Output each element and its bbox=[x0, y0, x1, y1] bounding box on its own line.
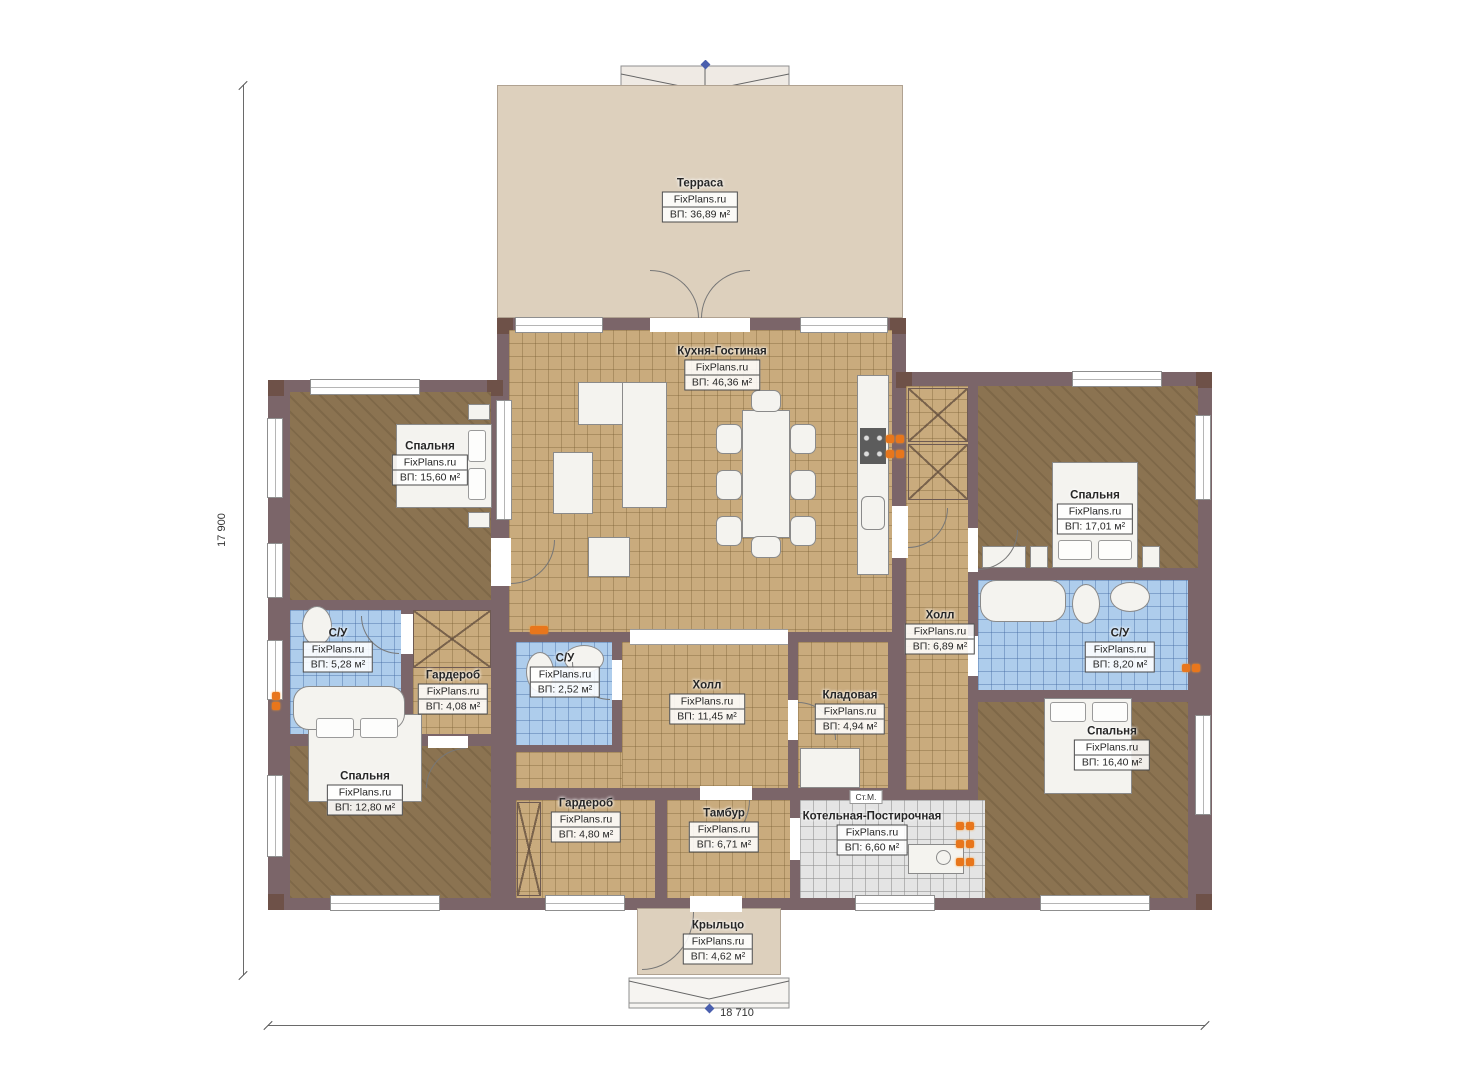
porch-steps-icon bbox=[628, 977, 790, 1015]
room-label-bathroom-2: С/У FixPlans.ruВП: 2,52 м² bbox=[530, 653, 600, 698]
brand-link: FixPlans.ru bbox=[419, 685, 487, 699]
window bbox=[267, 543, 283, 598]
window bbox=[800, 317, 888, 333]
room-label-terrace: Терраса FixPlans.ruВП: 36,89 м² bbox=[662, 178, 738, 223]
dining-chair bbox=[790, 470, 816, 500]
room-label-wardrobe-2: Гардероб FixPlans.ruВП: 4,80 м² bbox=[551, 798, 621, 843]
closet bbox=[413, 610, 491, 668]
hall-2-door-opening bbox=[892, 506, 908, 558]
kitchen-hall-opening bbox=[630, 629, 788, 645]
room-label-hall-1: Холл FixPlans.ruВП: 11,45 м² bbox=[669, 680, 745, 725]
dining-chair bbox=[790, 424, 816, 454]
nightstand bbox=[1030, 546, 1048, 568]
pillow bbox=[360, 718, 398, 738]
window bbox=[267, 640, 283, 700]
window bbox=[1195, 715, 1211, 815]
brand-link: FixPlans.ru bbox=[816, 705, 884, 719]
brand-link: FixPlans.ru bbox=[1058, 505, 1132, 519]
brand-link: FixPlans.ru bbox=[552, 813, 620, 827]
room-label-bedroom-3: Спальня FixPlans.ruВП: 16,40 м² bbox=[1074, 726, 1150, 771]
radiator-icon bbox=[272, 692, 280, 710]
room-label-pantry: Кладовая FixPlans.ruВП: 4,94 м² bbox=[815, 690, 885, 735]
room-label-kitchen-living: Кухня-Гостиная FixPlans.ruВП: 46,36 м² bbox=[677, 346, 766, 391]
brand-link: FixPlans.ru bbox=[663, 193, 737, 207]
brand-link: FixPlans.ru bbox=[690, 823, 758, 837]
brand-link: FixPlans.ru bbox=[906, 625, 974, 639]
brand-link: FixPlans.ru bbox=[685, 361, 759, 375]
window bbox=[267, 775, 283, 857]
dining-chair bbox=[716, 424, 742, 454]
pillow bbox=[1058, 540, 1092, 560]
room-label-bedroom-1: Спальня FixPlans.ruВП: 15,60 м² bbox=[392, 441, 468, 486]
room-hall-1-passage-floor bbox=[516, 752, 622, 788]
kitchen-sink bbox=[861, 496, 885, 530]
dimension-line-vertical bbox=[243, 85, 244, 975]
window bbox=[310, 379, 420, 395]
room-label-boiler-laundry: Котельная-Постирочная FixPlans.ruВП: 6,6… bbox=[803, 811, 942, 856]
nightstand bbox=[468, 512, 490, 528]
sofa bbox=[622, 382, 667, 508]
radiator-icon bbox=[886, 435, 904, 443]
bathtub bbox=[980, 580, 1066, 622]
room-label-bedroom-2: Спальня FixPlans.ruВП: 17,01 м² bbox=[1057, 490, 1133, 535]
dimension-line-horizontal bbox=[268, 1025, 1205, 1026]
bedroom-1-door-opening bbox=[491, 538, 511, 586]
brand-link: FixPlans.ru bbox=[838, 826, 906, 840]
armchair bbox=[588, 537, 630, 577]
kitchen-counter bbox=[857, 375, 889, 575]
vestibule-door-opening bbox=[700, 786, 752, 800]
floor-plan: 17 900 18 710 bbox=[0, 0, 1474, 1080]
room-label-vestibule: Тамбур FixPlans.ruВП: 6,71 м² bbox=[689, 808, 759, 853]
pillow bbox=[1092, 702, 1128, 722]
room-label-bathroom-1: С/У FixPlans.ruВП: 5,28 м² bbox=[303, 628, 373, 673]
dining-table bbox=[742, 410, 790, 538]
pillow bbox=[468, 430, 486, 462]
bathroom-sink bbox=[1110, 582, 1150, 612]
column bbox=[1196, 894, 1212, 910]
column bbox=[268, 894, 284, 910]
pantry-shelf bbox=[800, 748, 860, 788]
sofa-chaise bbox=[578, 382, 623, 425]
nightstand bbox=[468, 404, 490, 420]
room-label-hall-2: Холл FixPlans.ruВП: 6,89 м² bbox=[905, 610, 975, 655]
brand-link: FixPlans.ru bbox=[670, 695, 744, 709]
window bbox=[1040, 895, 1150, 911]
room-label-bathroom-3: С/У FixPlans.ruВП: 8,20 м² bbox=[1085, 628, 1155, 673]
bathroom-2-door-opening bbox=[612, 660, 622, 700]
brand-link: FixPlans.ru bbox=[1075, 741, 1149, 755]
entrance-door-opening bbox=[690, 896, 742, 912]
column bbox=[268, 380, 284, 396]
dining-chair bbox=[716, 516, 742, 546]
room-label-bedroom-4: Спальня FixPlans.ruВП: 12,80 м² bbox=[327, 771, 403, 816]
coffee-table bbox=[553, 452, 593, 514]
brand-link: FixPlans.ru bbox=[304, 643, 372, 657]
room-label-wardrobe-1: Гардероб FixPlans.ruВП: 4,08 м² bbox=[418, 670, 488, 715]
pillow bbox=[468, 468, 486, 500]
bedroom-4-door-opening bbox=[428, 736, 468, 748]
bedroom-2-door-opening bbox=[968, 528, 978, 572]
stove-icon bbox=[860, 428, 886, 464]
pillow bbox=[1098, 540, 1132, 560]
washing-machine-label: Ст.М. bbox=[850, 790, 883, 804]
window bbox=[496, 400, 512, 520]
radiator-icon bbox=[956, 822, 974, 830]
radiator-icon bbox=[886, 450, 904, 458]
window bbox=[267, 418, 283, 498]
dining-chair bbox=[751, 390, 781, 412]
dining-chair bbox=[751, 536, 781, 558]
terrace-door-opening bbox=[650, 318, 750, 332]
radiator-icon bbox=[956, 858, 974, 866]
brand-link: FixPlans.ru bbox=[393, 456, 467, 470]
closet bbox=[517, 802, 541, 896]
pillow bbox=[316, 718, 354, 738]
dimension-height-label: 17 900 bbox=[216, 513, 228, 547]
radiator-icon bbox=[530, 626, 548, 634]
bathroom-1-door-opening bbox=[401, 614, 413, 654]
pantry-door-opening bbox=[788, 700, 798, 740]
room-label-porch: Крыльцо FixPlans.ruВП: 4,62 м² bbox=[683, 920, 753, 965]
dining-chair bbox=[790, 516, 816, 546]
pillow bbox=[1050, 702, 1086, 722]
column bbox=[1196, 372, 1212, 388]
brand-link: FixPlans.ru bbox=[684, 935, 752, 949]
radiator-icon bbox=[956, 840, 974, 848]
toilet bbox=[1072, 584, 1100, 624]
brand-link: FixPlans.ru bbox=[531, 668, 599, 682]
dining-chair bbox=[716, 470, 742, 500]
closet bbox=[908, 444, 968, 500]
brand-link: FixPlans.ru bbox=[328, 786, 402, 800]
radiator-icon bbox=[1182, 664, 1200, 672]
boiler-door-opening bbox=[790, 818, 800, 860]
window bbox=[1072, 371, 1162, 387]
nightstand bbox=[1142, 546, 1160, 568]
window bbox=[515, 317, 603, 333]
closet bbox=[908, 388, 968, 442]
window bbox=[545, 895, 625, 911]
column bbox=[890, 318, 906, 334]
window bbox=[855, 895, 935, 911]
brand-link: FixPlans.ru bbox=[1086, 643, 1154, 657]
window bbox=[330, 895, 440, 911]
window bbox=[1195, 415, 1211, 500]
